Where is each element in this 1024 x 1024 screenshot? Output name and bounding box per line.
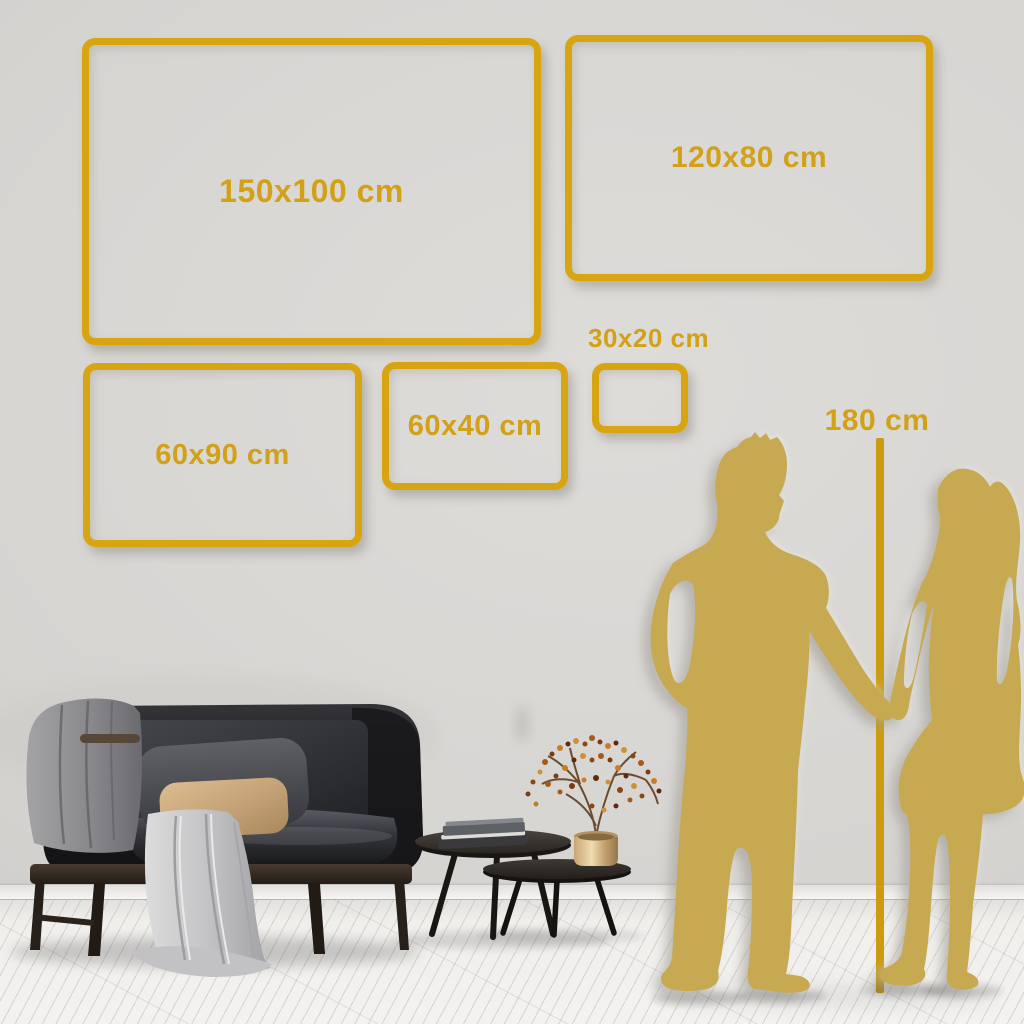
size-frame-60x90: 60x90 cm <box>83 363 362 547</box>
couple-silhouette <box>651 432 1024 993</box>
size-label-150x100: 150x100 cm <box>219 173 404 210</box>
size-frame-60x40: 60x40 cm <box>382 362 568 490</box>
size-label-60x90: 60x90 cm <box>155 439 290 472</box>
sofa-arm-dowel <box>80 734 140 743</box>
size-guide-image: 150x100 cm 120x80 cm 60x90 cm 60x40 cm 3… <box>0 0 1024 1024</box>
size-label-30x20: 30x20 cm <box>588 323 709 354</box>
size-label-120x80: 120x80 cm <box>671 141 827 175</box>
vase-body <box>574 837 618 866</box>
man-silhouette <box>651 432 894 993</box>
book-stack <box>437 818 526 850</box>
size-frame-30x20 <box>592 363 688 433</box>
size-frame-150x100: 150x100 cm <box>82 38 541 345</box>
wall-smudge-shadow <box>515 706 529 742</box>
berries <box>526 735 662 813</box>
height-reference-label: 180 cm <box>825 404 930 438</box>
sofa <box>26 699 423 977</box>
gray-throw-blanket-arm <box>26 699 142 853</box>
size-frame-120x80: 120x80 cm <box>565 35 933 281</box>
woman-silhouette <box>880 469 1024 990</box>
size-label-60x40: 60x40 cm <box>408 410 543 443</box>
